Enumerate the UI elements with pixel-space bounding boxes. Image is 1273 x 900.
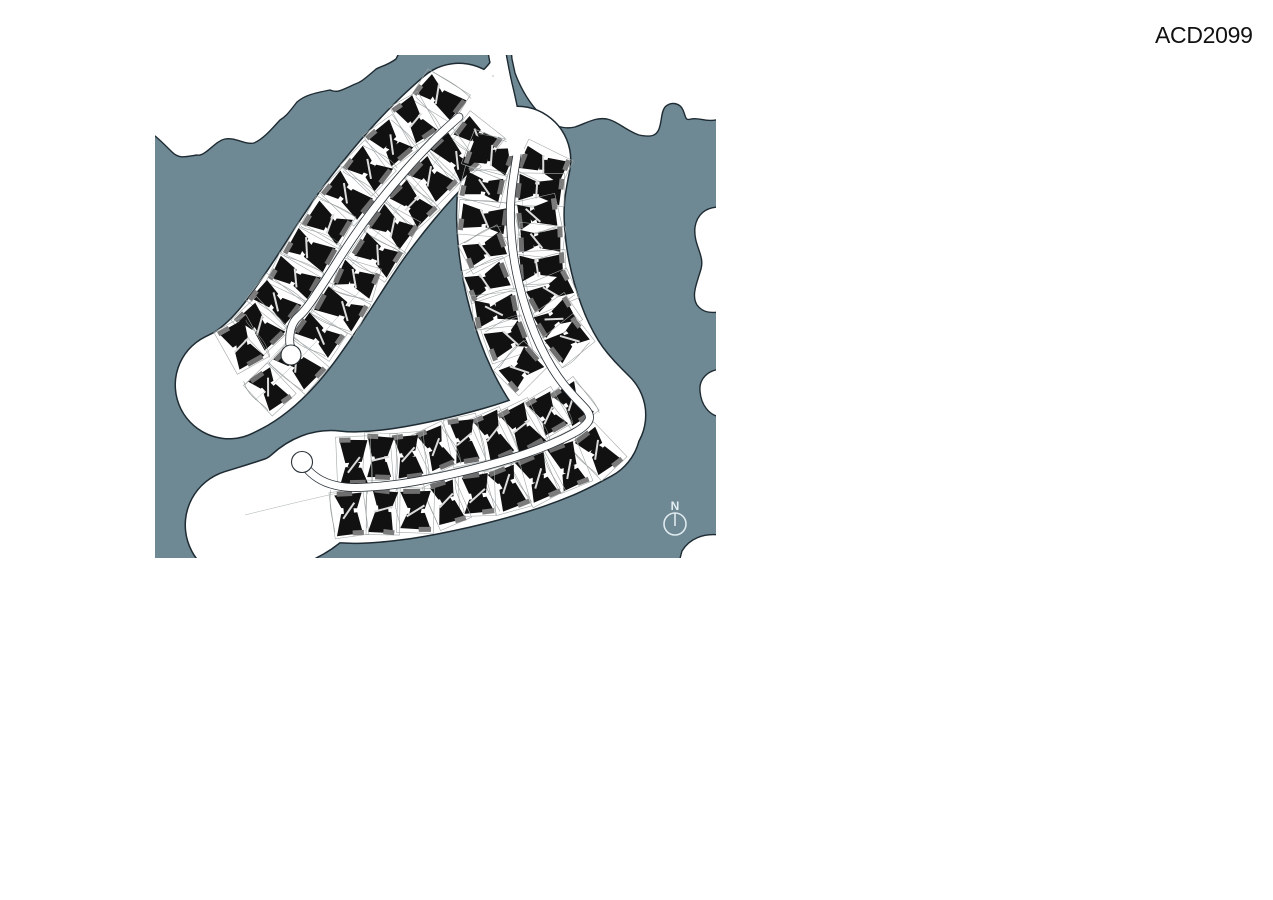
svg-text:N: N [671, 499, 680, 513]
